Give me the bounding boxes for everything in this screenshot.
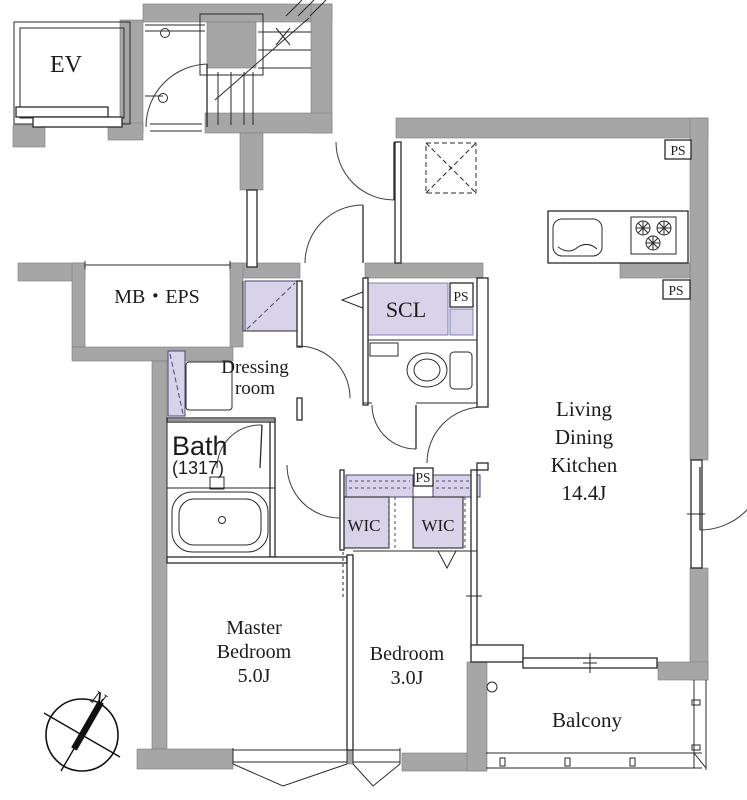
room-label-bath: Bath bbox=[172, 431, 228, 461]
room-label-ldk-3: Kitchen bbox=[551, 453, 618, 477]
dressing-door bbox=[298, 346, 350, 398]
ps-label: PS bbox=[670, 143, 685, 158]
bathroom: Bath (1317) bbox=[167, 420, 275, 557]
room-label-bath-size: (1317) bbox=[172, 458, 224, 478]
room-label-master-2: Bedroom bbox=[217, 641, 292, 663]
master-bedroom-door bbox=[287, 465, 340, 518]
room-label-scl: SCL bbox=[386, 297, 426, 322]
bedroom-windows bbox=[233, 748, 400, 786]
entrance-door bbox=[336, 142, 394, 200]
room-label-bedroom-2: 3.0J bbox=[391, 667, 424, 689]
bedroom: Bedroom 3.0J bbox=[370, 643, 445, 689]
room-label-mb-eps: MB・EPS bbox=[114, 286, 200, 308]
room-label-master-1: Master bbox=[226, 617, 282, 639]
common-door bbox=[146, 64, 207, 131]
toilet bbox=[370, 343, 472, 389]
elevator-door bbox=[16, 107, 108, 117]
room-label-ldk-2: Dining bbox=[555, 425, 614, 449]
ldk-side-window bbox=[687, 460, 747, 568]
room-label-bedroom-1: Bedroom bbox=[370, 643, 445, 665]
room-label-dressing-1: Dressing bbox=[221, 357, 289, 378]
mb-eps: MB・EPS bbox=[85, 261, 230, 308]
room-label-balcony: Balcony bbox=[552, 708, 622, 732]
toilet-bowl bbox=[407, 353, 447, 387]
wic-hanger-left bbox=[346, 475, 413, 497]
elevator: EV bbox=[14, 22, 130, 127]
kitchen bbox=[426, 143, 688, 263]
room-label-ldk-4: 14.4J bbox=[562, 481, 607, 505]
room-label-master-3: 5.0J bbox=[238, 665, 271, 687]
elevator-door bbox=[33, 117, 122, 127]
room-label-ev: EV bbox=[50, 52, 83, 78]
compass: N bbox=[44, 686, 120, 771]
hall-inner-door bbox=[305, 205, 363, 263]
room-label-wic-right: WIC bbox=[421, 516, 454, 535]
ldk-door bbox=[427, 407, 483, 463]
entrance-hall bbox=[247, 142, 401, 267]
closet-areas bbox=[168, 281, 480, 548]
ps-label: PS bbox=[668, 283, 683, 298]
room-label-dressing-2: room bbox=[235, 378, 275, 399]
ps-label: PS bbox=[415, 470, 430, 485]
toilet-tank bbox=[450, 352, 472, 389]
refrigerator-space bbox=[426, 143, 476, 193]
balcony-sliding-window bbox=[523, 653, 657, 673]
master-bedroom: Master Bedroom 5.0J bbox=[217, 617, 292, 687]
toilet-door bbox=[372, 405, 416, 449]
ldk: Living Dining Kitchen 14.4J bbox=[551, 397, 618, 505]
ps-label: PS bbox=[453, 289, 468, 304]
room-label-ldk-1: Living bbox=[556, 397, 612, 421]
room-label-wic-left: WIC bbox=[347, 516, 380, 535]
dressing-room: Dressing room bbox=[186, 357, 289, 410]
wic-folding-door-icon bbox=[438, 551, 456, 568]
floor-plan: EV MB・EPS bbox=[0, 0, 747, 800]
